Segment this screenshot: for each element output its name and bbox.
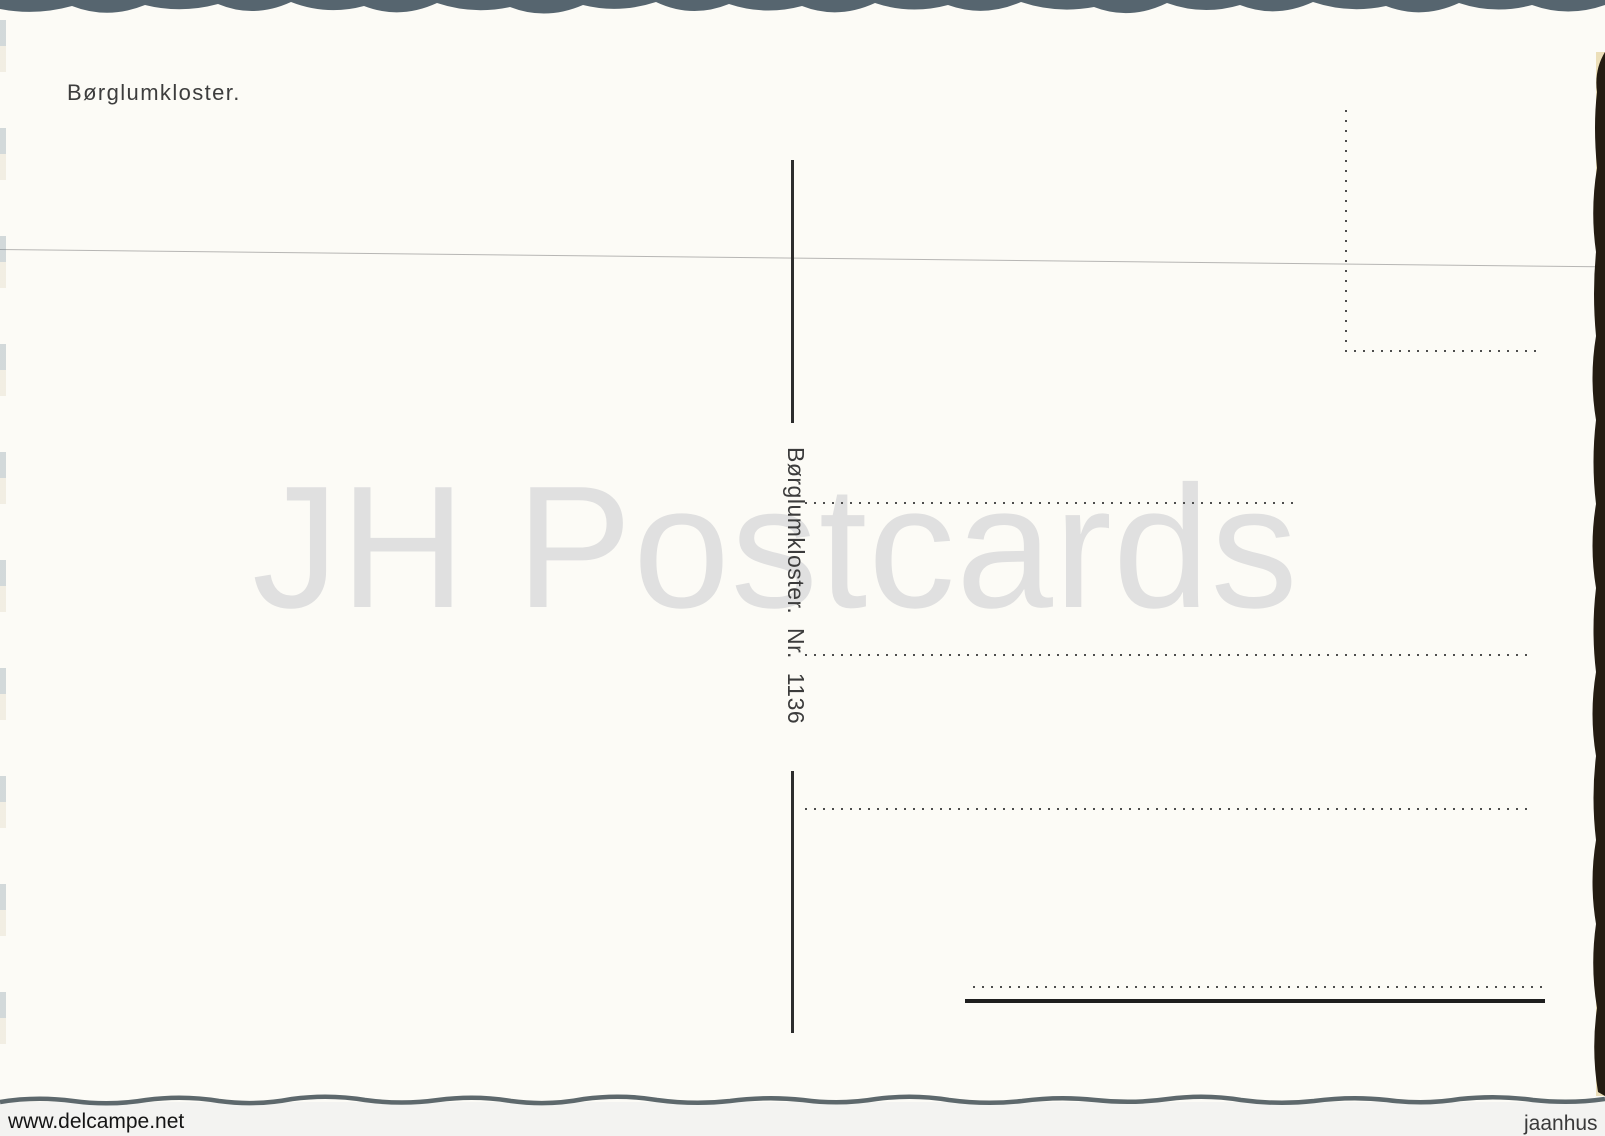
jaanhus-watermark: jaanhus (1524, 1112, 1598, 1136)
address-line-4 (973, 986, 1543, 988)
address-line-3 (805, 808, 1531, 810)
right-deckle-edge (1583, 0, 1605, 1132)
delcampe-watermark: www.delcampe.net (8, 1110, 184, 1134)
publisher-imprint: Børglumkloster. Nr. 1136 (775, 447, 809, 769)
left-deckle-edge (0, 20, 6, 1100)
stamp-box-left-dotted (1345, 110, 1347, 352)
address-line-2 (805, 654, 1533, 656)
signature-underline (965, 999, 1545, 1003)
top-deckle-edge (0, 0, 1605, 22)
divider-line-bottom (791, 771, 794, 1033)
bottom-deckle-edge (0, 1088, 1605, 1114)
stamp-box-bottom-dotted (1345, 350, 1543, 352)
card-title: Børglumkloster. (67, 80, 241, 106)
address-line-1 (805, 502, 1297, 504)
divider-line-top (791, 160, 794, 423)
